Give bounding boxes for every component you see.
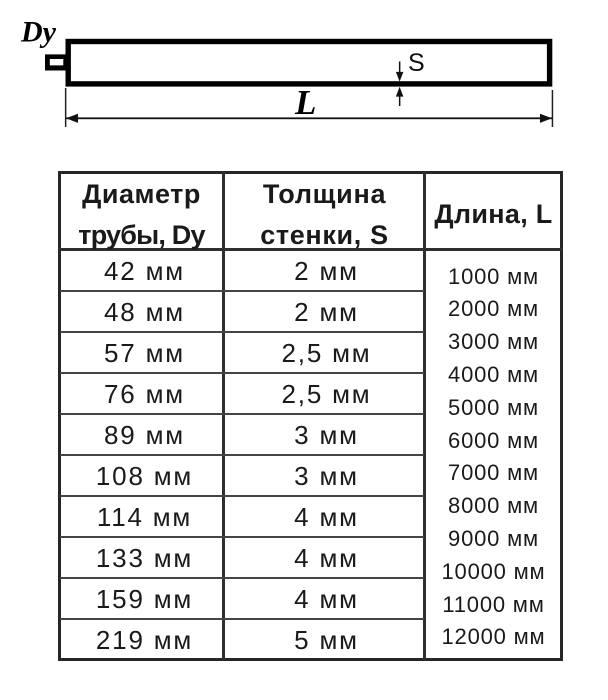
svg-text:Dy: Dy: [20, 16, 57, 49]
svg-text:S: S: [408, 49, 425, 77]
svg-text:L: L: [294, 83, 316, 122]
